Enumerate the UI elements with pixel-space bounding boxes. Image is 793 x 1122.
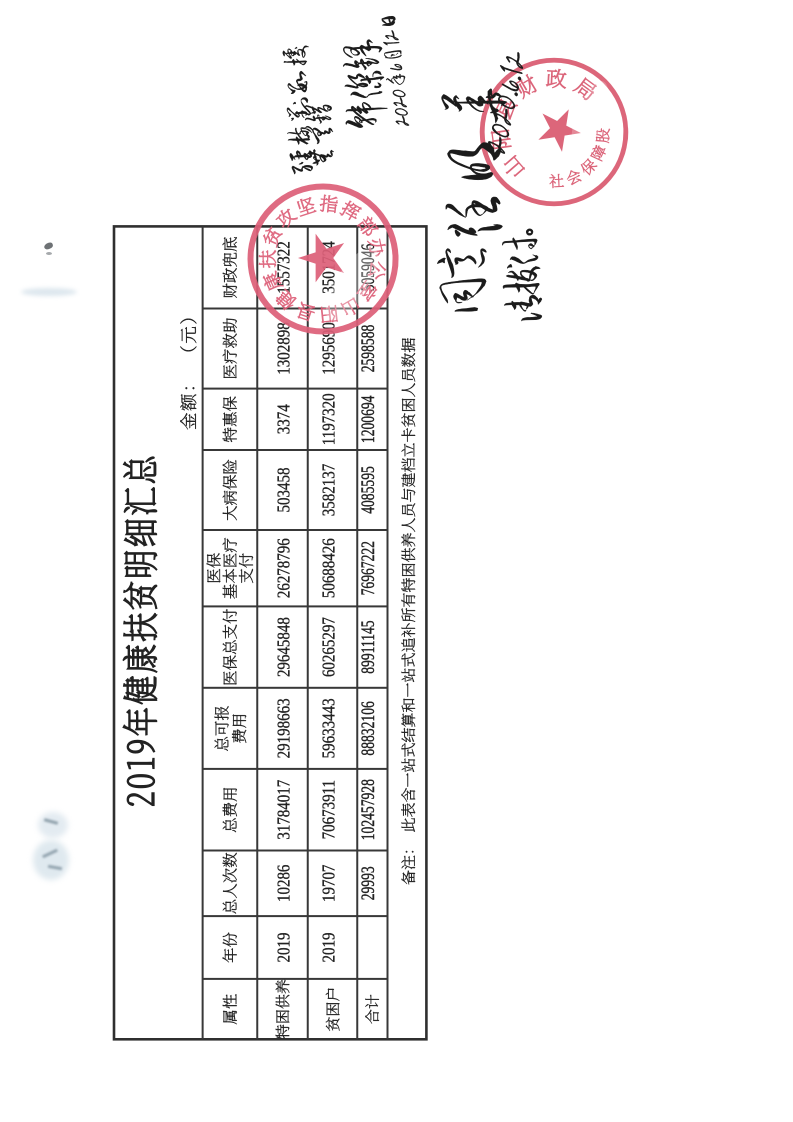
svg-text:1200694: 1200694 [357, 396, 379, 444]
svg-text:60265297: 60265297 [318, 617, 339, 677]
svg-text:50688426: 50688426 [318, 538, 339, 598]
svg-text:2598588: 2598588 [357, 325, 379, 373]
svg-text:4085595: 4085595 [357, 466, 379, 514]
svg-text:2019: 2019 [273, 933, 294, 963]
svg-text:29993: 29993 [357, 866, 379, 900]
svg-text:29198663: 29198663 [273, 698, 294, 758]
svg-text:1197320: 1197320 [318, 393, 339, 445]
svg-text:76967222: 76967222 [357, 541, 379, 595]
svg-text:88832106: 88832106 [357, 701, 379, 755]
svg-text:1302898: 1302898 [273, 322, 294, 374]
svg-text:26278796: 26278796 [273, 538, 294, 598]
svg-text:503458: 503458 [273, 468, 294, 513]
svg-text:19707: 19707 [318, 865, 339, 902]
svg-text:3374: 3374 [273, 404, 294, 435]
svg-text:102457928: 102457928 [357, 779, 379, 840]
svg-text:29645848: 29645848 [273, 617, 294, 677]
svg-text:89911145: 89911145 [357, 620, 379, 673]
svg-text:59633443: 59633443 [318, 698, 339, 758]
svg-text:2019: 2019 [318, 933, 339, 963]
svg-text:31784017: 31784017 [273, 780, 294, 840]
svg-text:3582137: 3582137 [318, 464, 339, 516]
svg-text:70673911: 70673911 [318, 780, 339, 839]
svg-text:10286: 10286 [273, 865, 294, 902]
